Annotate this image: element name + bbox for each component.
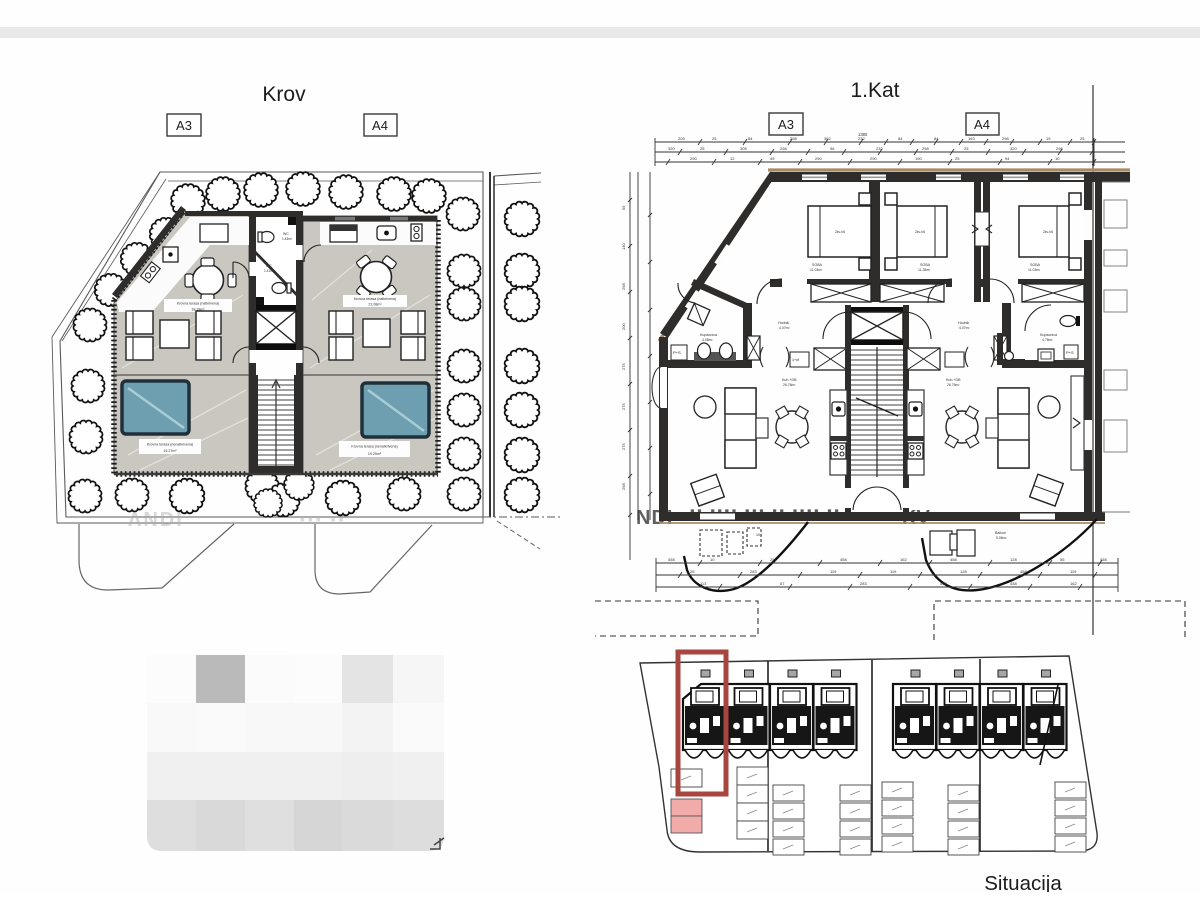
svg-text:55: 55 <box>621 205 626 210</box>
svg-text:5.06m²: 5.06m² <box>996 536 1007 540</box>
svg-text:458: 458 <box>940 581 947 586</box>
svg-text:84: 84 <box>748 136 753 141</box>
svg-text:▪▪▪ ▪▪: ▪▪▪ ▪▪ <box>300 511 347 527</box>
svg-text:11.03m²: 11.03m² <box>810 268 823 272</box>
svg-text:320: 320 <box>1010 146 1017 151</box>
svg-text:1380: 1380 <box>858 132 868 137</box>
svg-text:458: 458 <box>840 557 847 562</box>
svg-text:Kupaonica: Kupaonica <box>1040 333 1057 337</box>
svg-text:26.76m²: 26.76m² <box>947 383 960 387</box>
svg-text:Hodnik: Hodnik <box>778 321 789 325</box>
svg-text:458: 458 <box>1100 557 1107 562</box>
svg-text:4.07m²: 4.07m² <box>959 326 970 330</box>
svg-text:Situacija: Situacija <box>984 872 1062 892</box>
svg-text:119: 119 <box>1070 569 1077 574</box>
svg-text:458: 458 <box>668 557 675 562</box>
svg-text:25: 25 <box>700 146 705 151</box>
svg-text:11.03m²: 11.03m² <box>1028 268 1041 272</box>
svg-text:298: 298 <box>790 136 797 141</box>
svg-text:25: 25 <box>955 156 960 161</box>
svg-text:2kv-h6: 2kv-h6 <box>1043 230 1053 234</box>
svg-text:200: 200 <box>621 323 626 330</box>
svg-text:119: 119 <box>890 569 897 574</box>
svg-text:96: 96 <box>830 146 835 151</box>
svg-text:SOBA: SOBA <box>812 263 823 267</box>
svg-text:298: 298 <box>1056 146 1063 151</box>
svg-text:11.28m²: 11.28m² <box>918 268 931 272</box>
svg-text:SOBA: SOBA <box>920 263 931 267</box>
svg-text:Krovna terasa (natkrivena): Krovna terasa (natkrivena) <box>177 301 219 305</box>
svg-text:Balkon: Balkon <box>995 531 1006 535</box>
svg-text:10: 10 <box>1055 156 1060 161</box>
svg-text:A4: A4 <box>372 118 388 133</box>
svg-text:WC: WC <box>266 264 272 268</box>
svg-text:Krovna terasa (nenatkrivena): Krovna terasa (nenatkrivena) <box>147 442 193 446</box>
svg-text:128: 128 <box>960 569 967 574</box>
svg-text:10 i: 10 i <box>756 533 762 537</box>
svg-text:298: 298 <box>922 146 929 151</box>
svg-text:290: 290 <box>870 156 877 161</box>
svg-text:205: 205 <box>678 136 685 141</box>
svg-text:1.43m²: 1.43m² <box>282 237 292 241</box>
svg-text:4.08m²: 4.08m² <box>702 338 713 342</box>
svg-text:12: 12 <box>730 156 735 161</box>
svg-text:320: 320 <box>668 146 675 151</box>
svg-text:ΛNDI: ΛNDI <box>128 509 184 531</box>
svg-text:25: 25 <box>964 146 969 151</box>
svg-text:49: 49 <box>770 156 775 161</box>
svg-text:P+S: P+S <box>673 350 681 355</box>
svg-text:283: 283 <box>860 581 867 586</box>
svg-text:84: 84 <box>898 136 903 141</box>
svg-text:290: 290 <box>815 156 822 161</box>
svg-text:162: 162 <box>900 557 907 562</box>
svg-text:458: 458 <box>950 557 957 562</box>
svg-text:119: 119 <box>830 569 837 574</box>
svg-text:298: 298 <box>621 283 626 290</box>
svg-text:A3: A3 <box>778 117 794 132</box>
svg-text:25: 25 <box>690 569 695 574</box>
svg-text:305: 305 <box>740 146 747 151</box>
svg-text:Krovna terasa (natkrivena): Krovna terasa (natkrivena) <box>354 297 396 301</box>
svg-text:362: 362 <box>824 136 831 141</box>
svg-text:Kuh.+DB: Kuh.+DB <box>782 378 797 382</box>
svg-text:113: 113 <box>700 581 707 586</box>
svg-text:130: 130 <box>621 243 626 250</box>
svg-text:1.Kat: 1.Kat <box>850 79 899 102</box>
svg-text:19.27m²: 19.27m² <box>163 449 177 453</box>
svg-text:298: 298 <box>780 146 787 151</box>
svg-text:298: 298 <box>621 483 626 490</box>
svg-text:458: 458 <box>1020 569 1027 574</box>
svg-text:Kupaonica: Kupaonica <box>700 333 717 337</box>
svg-text:283: 283 <box>750 569 757 574</box>
svg-text:163: 163 <box>968 136 975 141</box>
svg-text:25: 25 <box>1080 136 1085 141</box>
svg-text:84: 84 <box>934 136 939 141</box>
svg-text:55: 55 <box>1060 557 1065 562</box>
svg-text:162: 162 <box>1070 581 1077 586</box>
svg-text:190: 190 <box>915 156 922 161</box>
svg-text:232: 232 <box>876 146 883 151</box>
svg-text:Hodnik: Hodnik <box>958 321 969 325</box>
svg-text:21.08m²: 21.08m² <box>368 303 382 307</box>
svg-text:275: 275 <box>621 443 626 450</box>
svg-text:19.25m²: 19.25m² <box>368 452 382 456</box>
svg-text:94: 94 <box>1005 156 1010 161</box>
svg-text:SOBA: SOBA <box>1030 263 1041 267</box>
svg-text:275: 275 <box>621 403 626 410</box>
svg-text:25: 25 <box>712 136 717 141</box>
svg-text:Krov: Krov <box>262 83 306 106</box>
svg-text:WC: WC <box>283 232 289 236</box>
svg-text:290: 290 <box>690 156 697 161</box>
svg-text:A4: A4 <box>974 117 990 132</box>
svg-text:1.41m²: 1.41m² <box>264 269 274 273</box>
svg-text:25: 25 <box>770 557 775 562</box>
svg-text:4.07m²: 4.07m² <box>779 326 790 330</box>
svg-text:275: 275 <box>621 363 626 370</box>
svg-text:19: 19 <box>1046 136 1051 141</box>
svg-text:Krovna terasa (nenatkrivena): Krovna terasa (nenatkrivena) <box>351 445 397 449</box>
svg-text:Kuh.+DB: Kuh.+DB <box>946 378 961 382</box>
svg-text:4.78m²: 4.78m² <box>1042 338 1053 342</box>
svg-text:26.76m²: 26.76m² <box>783 383 796 387</box>
svg-text:298: 298 <box>1002 136 1009 141</box>
svg-text:P+S: P+S <box>1066 350 1074 355</box>
svg-text:2kv-h6: 2kv-h6 <box>835 230 845 234</box>
svg-text:2kv-h6: 2kv-h6 <box>915 230 925 234</box>
svg-text:10: 10 <box>710 557 715 562</box>
svg-text:1+of: 1+of <box>792 358 799 362</box>
svg-text:A3: A3 <box>176 118 192 133</box>
svg-text:67: 67 <box>780 581 785 586</box>
svg-text:128: 128 <box>1010 557 1017 562</box>
svg-text:458: 458 <box>1010 581 1017 586</box>
